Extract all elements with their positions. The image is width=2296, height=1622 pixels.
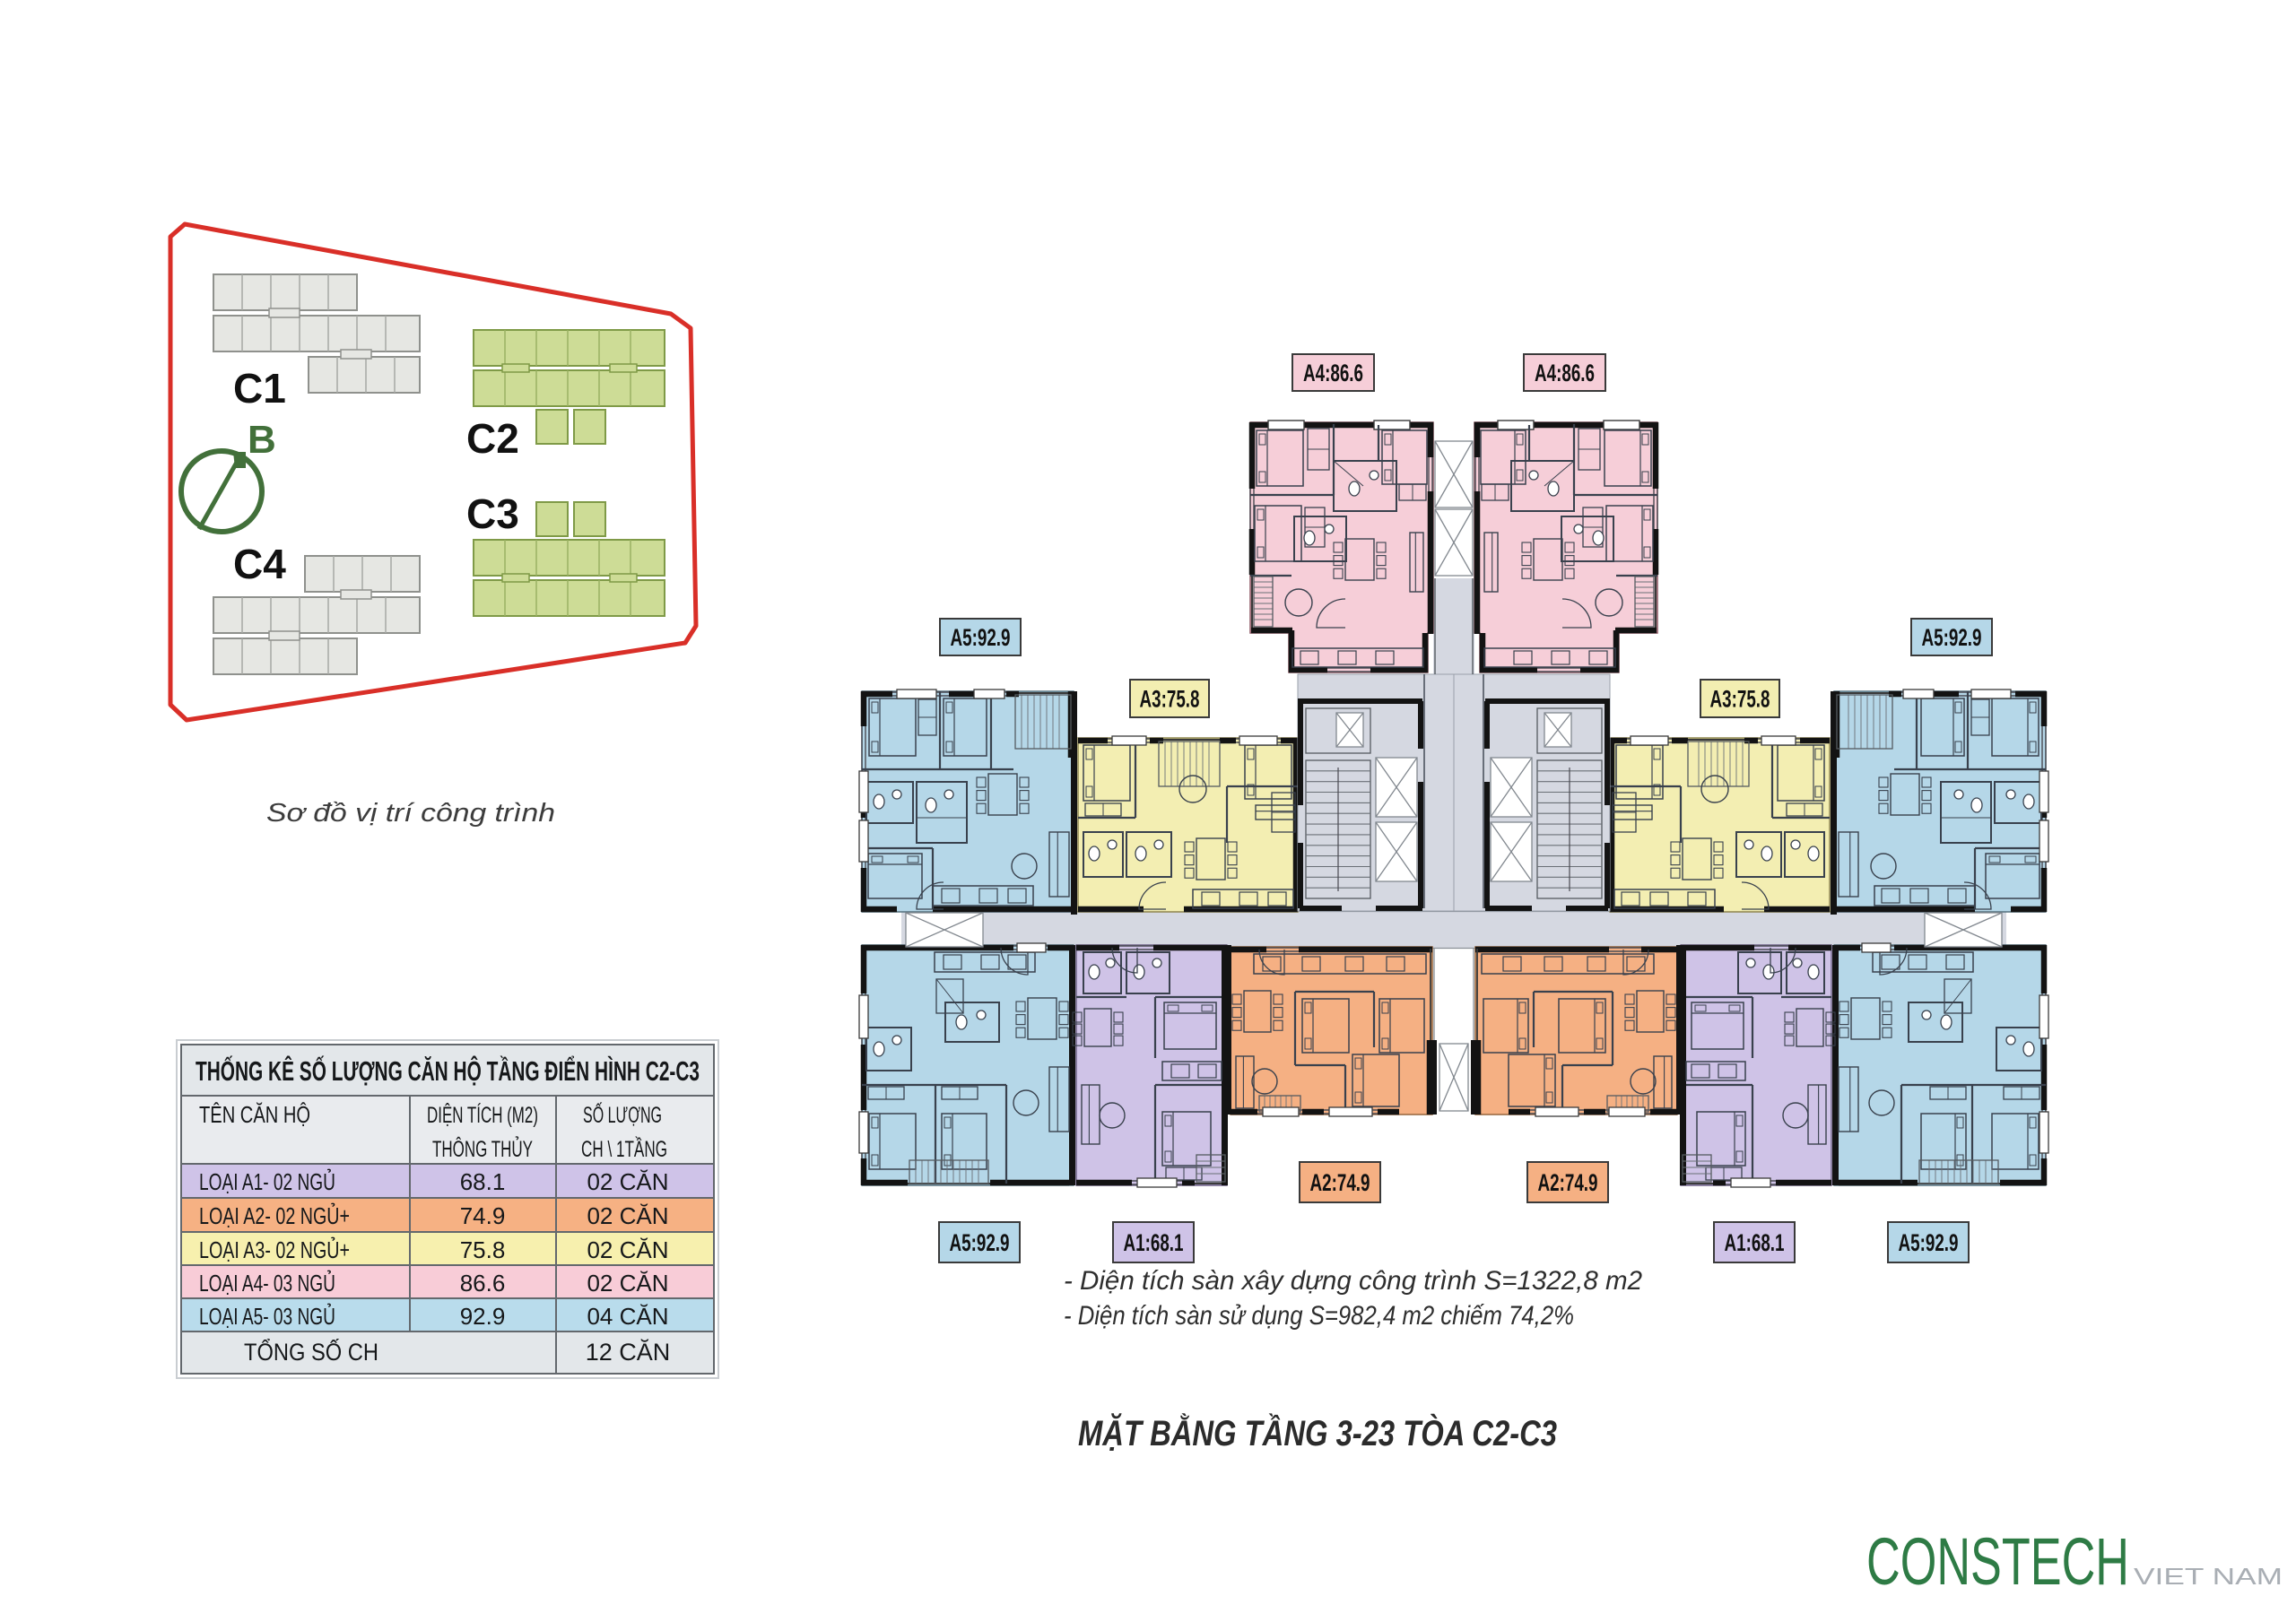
svg-text:TỔNG SỐ CH: TỔNG SỐ CH [244,1337,378,1366]
svg-text:LOẠI A3- 02 NGỦ+: LOẠI A3- 02 NGỦ+ [199,1236,350,1263]
svg-text:LOẠI A4- 03 NGỦ: LOẠI A4- 03 NGỦ [199,1269,335,1297]
svg-text:C2: C2 [466,415,519,462]
svg-text:CH \ 1TẦNG: CH \ 1TẦNG [581,1136,667,1162]
svg-text:C3: C3 [466,490,519,537]
svg-text:DIỆN TÍCH (M2): DIỆN TÍCH (M2) [427,1102,538,1128]
svg-text:CONSTECH: CONSTECH [1866,1524,2129,1599]
svg-text:B: B [248,418,276,462]
svg-text:86.6: 86.6 [460,1270,506,1297]
svg-text:Sơ đồ vị trí công trình: Sơ đồ vị trí công trình [266,799,555,828]
svg-text:A4:86.6: A4:86.6 [1535,360,1595,386]
svg-text:04 CĂN: 04 CĂN [587,1303,668,1330]
svg-text:A2:74.9: A2:74.9 [1310,1169,1370,1196]
svg-text:THÔNG THỦY: THÔNG THỦY [432,1135,533,1162]
svg-text:- Diện tích sàn sử dụng S=982,: - Diện tích sàn sử dụng S=982,4 m2 chiếm… [1064,1301,1574,1331]
svg-text:A5:92.9: A5:92.9 [951,624,1011,651]
svg-text:C1: C1 [233,365,286,412]
svg-text:02 CĂN: 02 CĂN [587,1270,668,1297]
svg-text:LOẠI A5- 03 NGỦ: LOẠI A5- 03 NGỦ [199,1302,335,1330]
svg-text:A5:92.9: A5:92.9 [1899,1229,1959,1256]
svg-text:A5:92.9: A5:92.9 [1922,624,1982,651]
svg-text:75.8: 75.8 [460,1236,506,1263]
svg-text:A5:92.9: A5:92.9 [950,1229,1010,1256]
svg-text:A3:75.8: A3:75.8 [1710,686,1770,713]
svg-text:A1:68.1: A1:68.1 [1725,1229,1785,1256]
svg-text:TÊN CĂN HỘ: TÊN CĂN HỘ [199,1101,310,1128]
svg-text:THỐNG KÊ SỐ LƯỢNG CĂN HỘ TẦNG: THỐNG KÊ SỐ LƯỢNG CĂN HỘ TẦNG ĐIỂN HÌNH … [196,1054,700,1087]
svg-text:02 CĂN: 02 CĂN [587,1202,668,1229]
svg-text:68.1: 68.1 [460,1168,506,1195]
svg-text:A4:86.6: A4:86.6 [1303,360,1363,386]
svg-text:LOẠI A1- 02 NGỦ: LOẠI A1- 02 NGỦ [199,1167,335,1195]
svg-text:MẶT BẰNG TẦNG 3-23 TÒA C2-C3: MẶT BẰNG TẦNG 3-23 TÒA C2-C3 [1078,1412,1557,1453]
svg-text:SỐ LƯỢNG: SỐ LƯỢNG [583,1101,662,1128]
svg-text:74.9: 74.9 [460,1202,506,1229]
svg-text:02 CĂN: 02 CĂN [587,1236,668,1263]
svg-text:A1:68.1: A1:68.1 [1124,1229,1184,1256]
svg-text:92.9: 92.9 [460,1303,506,1330]
svg-text:- Diện tích sàn xây dựng công: - Diện tích sàn xây dựng công trình S=13… [1064,1266,1642,1296]
svg-text:C4: C4 [233,541,286,587]
svg-text:A3:75.8: A3:75.8 [1140,686,1200,713]
svg-text:LOẠI A2- 02 NGỦ+: LOẠI A2- 02 NGỦ+ [199,1201,350,1229]
svg-text:VIET NAM: VIET NAM [2134,1563,2283,1590]
svg-text:02 CĂN: 02 CĂN [587,1168,668,1195]
svg-text:A2:74.9: A2:74.9 [1538,1169,1598,1196]
svg-text:12 CĂN: 12 CĂN [586,1339,671,1366]
